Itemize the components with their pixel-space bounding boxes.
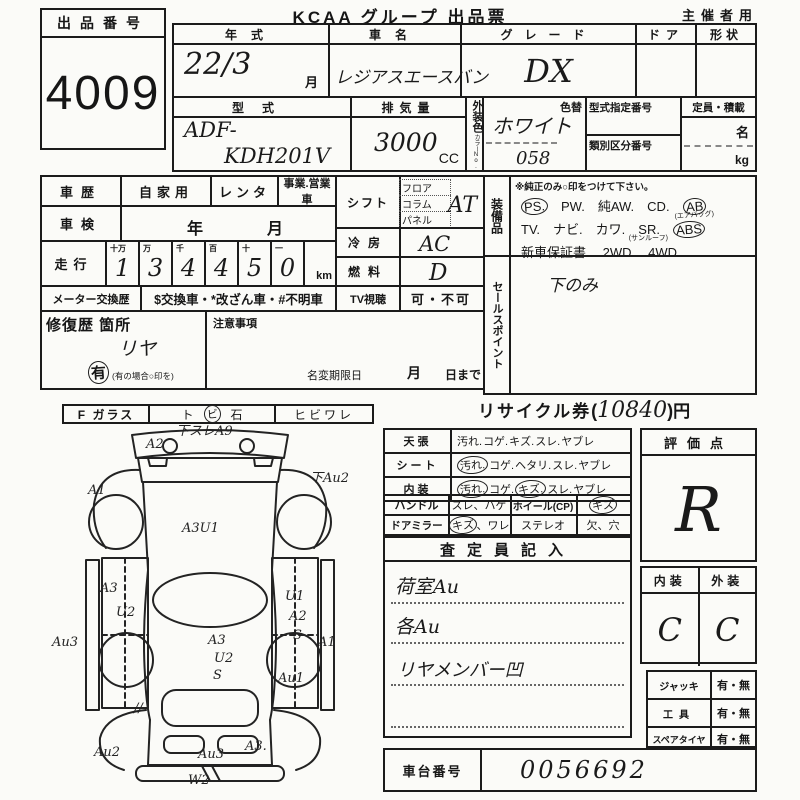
equipment-item: 純AW.	[598, 199, 634, 214]
appraiser-notes-box: 荷室Au 各Au リヤメンバー凹	[383, 560, 632, 738]
mileage-col: 十万1	[107, 242, 140, 285]
equipment-line: PS.PW.純AW.CD.AB(エアバッグ)	[521, 196, 753, 216]
capacity-person: 名	[736, 122, 749, 141]
repair-value: リヤ	[118, 334, 156, 361]
damage-annotation: A1	[317, 635, 336, 650]
repair-has-note: (有の場合○印を)	[112, 370, 174, 382]
meter-label: メーター交換歴	[40, 285, 142, 312]
color-divider	[486, 142, 557, 144]
mileage-col: 一0	[272, 242, 305, 285]
year-value-cell: 22/3 月	[172, 43, 330, 98]
appraiser-header: 査定員記入	[383, 536, 632, 562]
shift-label: シフト	[337, 177, 401, 227]
repair-cell: 修復歴 箇所 リヤ 有 (有の場合○印を)	[40, 310, 207, 390]
damage-annotation: A3U1	[181, 521, 219, 536]
equipment-lines: PS.PW.純AW.CD.AB(エアバッグ)TV.ナビ.カワ.SR.(サンルーフ…	[515, 196, 753, 262]
mileage-label: 走行	[40, 240, 107, 287]
damage-annotation: Au3	[51, 635, 78, 650]
tv-label: TV視聴	[337, 287, 401, 310]
equipment-item: TV.	[521, 222, 540, 237]
displacement-unit: CC	[439, 150, 459, 166]
ext-color-value: ホワイト	[492, 110, 572, 139]
ext-color-sub: カラーNo.	[472, 134, 481, 170]
shift-value: AT	[448, 193, 477, 218]
sales-point-box: セールスポイント 下のみ	[483, 255, 757, 395]
repair-label: 修復歴 箇所	[46, 314, 131, 335]
condition-row: 天張汚れ.コゲ.キズ.スレ.ヤブレ	[385, 430, 630, 454]
equipment-label: 装備品	[485, 177, 511, 255]
appraiser-note: 荷室Au	[395, 572, 459, 599]
condition-rows: 天張汚れ.コゲ.キズ.スレ.ヤブレシート汚れ.コゲ.ヘタリ.スレ.ヤブレ内装汚れ…	[383, 428, 632, 502]
damage-annotation: A3.	[244, 739, 267, 754]
inspection-label: 車検	[40, 205, 122, 242]
sales-point-label: セールスポイント	[485, 257, 511, 393]
evaluation-box: 評価点 R	[640, 428, 757, 562]
tv-row: TV視聴 可・不可	[335, 285, 485, 312]
auction-sheet: { "page": {"title": "KCAA グループ 出品票", "au…	[0, 0, 800, 800]
grade-value-cell: DX	[460, 43, 637, 98]
year-header: 年式	[172, 23, 330, 45]
damage-annotation: U2	[214, 651, 233, 666]
mileage-col: 百4	[206, 242, 239, 285]
accessory-row: スペアタイヤ 有・無	[648, 728, 755, 750]
mirror-row: ドアミラー キズ、ワレ ステレオ 欠、穴	[383, 514, 632, 536]
model-code: KDH201V	[224, 144, 330, 168]
damage-annotation: A3	[207, 633, 226, 648]
damage-annotation: S	[293, 628, 302, 643]
damage-annotation: W2	[188, 773, 210, 788]
wheel-opt: キズ	[588, 495, 617, 515]
wheel-label: ホイール(CP)	[510, 496, 578, 514]
accessory-row: 工具 有・無	[648, 700, 755, 728]
deadline-label: 名変期限日	[307, 367, 362, 383]
name-header: 車名	[328, 23, 462, 45]
door-value-cell	[635, 43, 697, 98]
chassis-label: 車台番号	[385, 750, 482, 790]
mirror-label: ドアミラー	[385, 516, 450, 534]
capacity-kg: kg	[735, 153, 749, 167]
model-prefix: ADF-	[184, 118, 237, 142]
appraiser-note: リヤメンバー凹	[397, 656, 523, 682]
shape-value-cell	[695, 43, 757, 98]
appraiser-note: 各Au	[395, 612, 440, 639]
recycle-unit: 円	[673, 402, 690, 421]
history-label: 車歴	[40, 175, 122, 207]
mileage-col: 万3	[140, 242, 173, 285]
interior-label: 内装	[642, 568, 700, 592]
repair-has-mark: 有	[87, 360, 110, 384]
shape-header: 形状	[695, 23, 757, 45]
equipment-item: PS.	[520, 197, 548, 216]
history-private: 自家用	[120, 175, 212, 207]
mileage-unit-col: km	[305, 242, 335, 285]
chassis-number: 0056692	[520, 756, 648, 784]
fuel-row: 燃料 D	[335, 256, 485, 287]
damage-annotation: 下スレA9	[176, 424, 233, 439]
model-value-cell: ADF- KDH201V	[172, 116, 352, 172]
cooling-label: 冷房	[337, 229, 401, 256]
shift-options: フロア コラム パネル	[399, 179, 451, 228]
inspection-month: 月	[267, 215, 283, 239]
equipment-item: CD.	[647, 199, 669, 214]
mileage-col: 十5	[239, 242, 272, 285]
year-value: 22/3	[184, 47, 251, 82]
displacement-value: 3000	[374, 128, 438, 157]
meter-codes: $交換車・*改ざん車・#不明車	[140, 285, 337, 312]
damage-annotation: A3	[99, 581, 118, 596]
auction-number-box: 出品番号 4009	[40, 8, 166, 150]
mileage-columns: 十万1 万3 千4 百4 十5 一0 km	[107, 242, 335, 285]
auction-number-value: 4009	[42, 38, 164, 148]
equipment-item: AB(エアバッグ)	[682, 197, 706, 216]
mileage-digit: 3	[140, 250, 171, 285]
history-rental: レンタ	[210, 175, 279, 207]
damage-annotation: Au3	[197, 747, 224, 762]
door-header: ドア	[635, 23, 697, 45]
equipment-content: ※純正のみ○印をつけて下さい。 PS.PW.純AW.CD.AB(エアバッグ)TV…	[515, 179, 753, 262]
sales-point-value: 下のみ	[547, 271, 598, 296]
history-commercial: 事業.営業車	[277, 175, 337, 207]
evaluation-label: 評価点	[642, 430, 755, 456]
chassis-box: 車台番号 0056692	[383, 748, 757, 792]
inspection-value-cell: 年 月	[120, 205, 337, 242]
mileage-digit: 5	[239, 250, 270, 285]
damage-annotation: Au1	[277, 671, 304, 686]
notes-cell: 注意事項 名変期限日 月 日まで	[205, 310, 485, 390]
damage-annotation: 下Au2	[310, 471, 349, 486]
deadline-month: 月	[407, 363, 421, 383]
displacement-value-cell: 3000 CC	[350, 116, 467, 172]
capacity-value-cell: 名 kg	[680, 116, 757, 172]
class-no-label: 類別区分番号	[589, 138, 652, 153]
cooling-value: AC	[419, 232, 450, 256]
mileage-col: 千4	[173, 242, 206, 285]
equipment-note: ※純正のみ○印をつけて下さい。	[515, 179, 753, 193]
mileage-digit: 1	[107, 250, 138, 285]
type-cert-cell: 型式指定番号	[585, 96, 682, 136]
accessory-row: ジャッキ 有・無	[648, 672, 755, 700]
recycle-label: リサイクル券	[478, 402, 591, 421]
exterior-label: 外装	[700, 568, 756, 592]
equipment-line: TV.ナビ.カワ.SR.(サンルーフ)ABS	[521, 219, 753, 239]
grade-value: DX	[524, 52, 572, 90]
interior-score: C	[642, 594, 700, 666]
inspection-year: 年	[187, 215, 203, 239]
handle-row: ハンドル スレ、ハゲ ホイール(CP) キズ	[383, 494, 632, 516]
handle-opts: スレ、ハゲ	[448, 496, 512, 514]
recycle-line: リサイクル券(10840)円	[478, 397, 758, 425]
damage-annotation: A2	[288, 609, 307, 624]
damage-annotation: Au2	[93, 745, 120, 760]
displacement-header: 排気量	[350, 96, 467, 118]
tv-value: 可・不可	[399, 287, 483, 310]
stereo-opts: 欠、穴	[576, 516, 630, 534]
damage-annotation: S	[213, 668, 222, 683]
class-no-cell: 類別区分番号	[585, 134, 682, 172]
exterior-score: C	[700, 594, 756, 666]
equipment-item: SR.(サンルーフ)	[638, 222, 660, 237]
equipment-box: 装備品 ※純正のみ○印をつけて下さい。 PS.PW.純AW.CD.AB(エアバッ…	[483, 175, 757, 257]
accessories-table: ジャッキ 有・無 工具 有・無 スペアタイヤ 有・無	[646, 670, 757, 748]
model-header: 型式	[172, 96, 352, 118]
auction-number-label: 出品番号	[42, 10, 164, 38]
type-cert-label: 型式指定番号	[589, 100, 652, 115]
recycle-amount: 10840	[597, 398, 667, 423]
interior-exterior-box: 内装 外装 C C	[640, 566, 757, 664]
grade-header: グレード	[460, 23, 637, 45]
shift-row: シフト フロア コラム パネル AT	[335, 175, 485, 229]
month-suffix: 月	[305, 72, 318, 91]
handle-label: ハンドル	[385, 496, 450, 514]
audience-label: 主催者用	[682, 5, 758, 24]
mileage-digit: 4	[173, 250, 204, 285]
damage-annotation: U1	[285, 589, 304, 604]
equipment-item: ABS	[672, 220, 705, 239]
cooling-row: 冷房 AC	[335, 227, 485, 258]
capacity-header: 定員・積載	[680, 96, 757, 118]
wheel-opt-cell: キズ	[576, 496, 630, 514]
notes-label: 注意事項	[213, 315, 257, 331]
deadline-day: 日まで	[445, 366, 481, 383]
equipment-item: ナビ.	[553, 222, 583, 237]
equipment-item: カワ.	[596, 222, 626, 237]
vehicle-damage-diagram: A2下スレA9A1下Au2A3U1A3U2Au3A3U2SU1A2SA1Au1/…	[42, 420, 377, 795]
stereo-label: ステレオ	[510, 516, 578, 534]
damage-annotation: A1	[87, 483, 106, 498]
mileage-unit: km	[316, 270, 332, 282]
evaluation-score: R	[642, 456, 755, 562]
condition-row: シート汚れ.コゲ.ヘタリ.スレ.ヤブレ	[385, 454, 630, 478]
damage-annotation: U2	[116, 605, 135, 620]
capacity-divider	[684, 145, 753, 147]
mileage-digit: 4	[206, 250, 237, 285]
damage-annotation: //	[132, 701, 144, 716]
damage-annotation: A2	[145, 437, 164, 452]
mileage-cell: 十万1 万3 千4 百4 十5 一0 km	[105, 240, 337, 287]
fuel-label: 燃料	[337, 258, 401, 285]
mirror-opts: キズ、ワレ	[448, 516, 512, 534]
equipment-item: PW.	[561, 199, 585, 214]
mileage-digit: 0	[272, 250, 303, 285]
name-value-cell: レジアスエースバン	[328, 43, 462, 98]
ext-color-value-cell: 色替 ホワイト 058	[482, 96, 587, 172]
fuel-value: D	[429, 260, 447, 286]
color-no: 058	[516, 148, 550, 169]
